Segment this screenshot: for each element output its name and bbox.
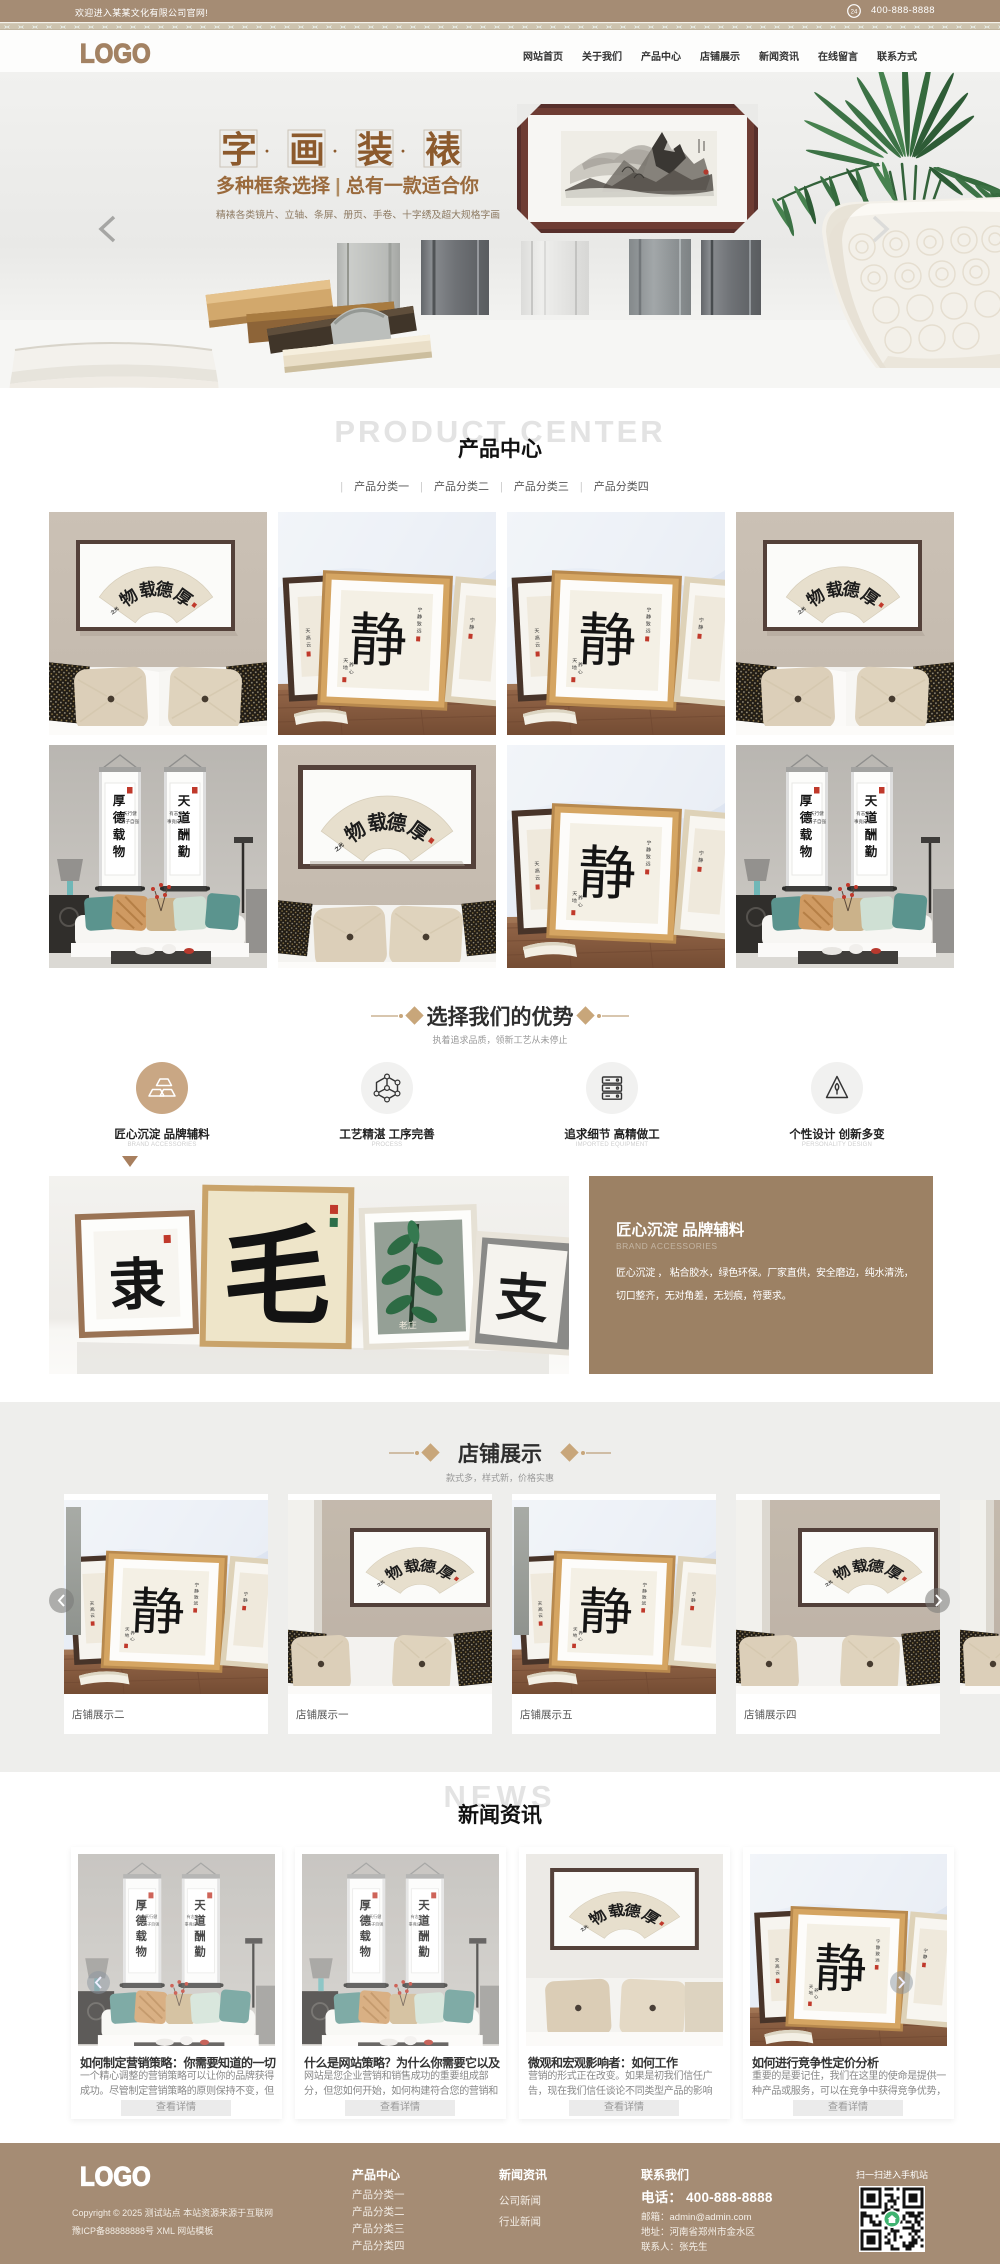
svg-text:画: 画: [289, 130, 325, 170]
svg-text:裱: 裱: [425, 130, 461, 170]
svg-text:毛: 毛: [222, 1218, 332, 1339]
svg-text:选择我们的优势: 选择我们的优势: [427, 1005, 574, 1029]
svg-text:精裱各类镜片、立轴、条屏、册页、手卷、十字绣及超大规格字画: 精裱各类镜片、立轴、条屏、册页、手卷、十字绣及超大规格字画: [216, 208, 500, 221]
svg-text:老庄: 老庄: [399, 1319, 417, 1331]
svg-text:店铺展示: 店铺展示: [458, 1442, 542, 1466]
svg-text:支: 支: [494, 1269, 550, 1330]
svg-text:装: 装: [357, 130, 393, 170]
svg-text:·: ·: [332, 141, 338, 161]
svg-text:字: 字: [221, 130, 257, 170]
svg-text:隶: 隶: [108, 1254, 166, 1318]
svg-text:多种框条选择 | 总有一款适合你: 多种框条选择 | 总有一款适合你: [216, 174, 479, 197]
svg-text:·: ·: [400, 141, 406, 161]
svg-text:·: ·: [264, 141, 270, 161]
svg-text:24: 24: [851, 10, 858, 16]
